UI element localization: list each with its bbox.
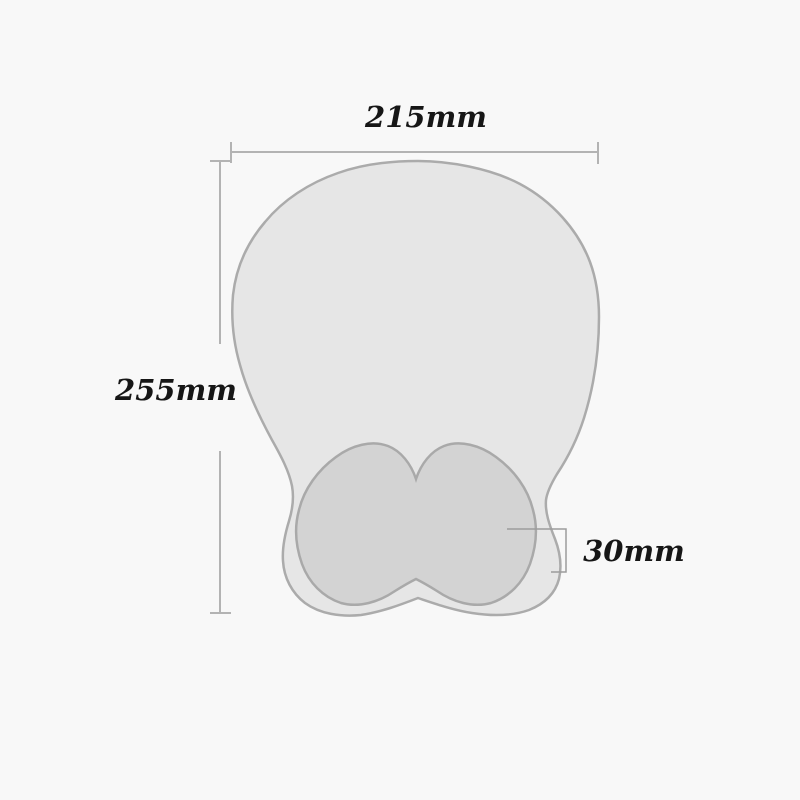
- height-dimension-label: 255mm: [115, 373, 237, 407]
- mousepad-dimension-diagram: 215mm 255mm 30mm: [0, 0, 800, 800]
- width-dimension-label: 215mm: [365, 100, 487, 134]
- thickness-dimension-label: 30mm: [583, 534, 685, 568]
